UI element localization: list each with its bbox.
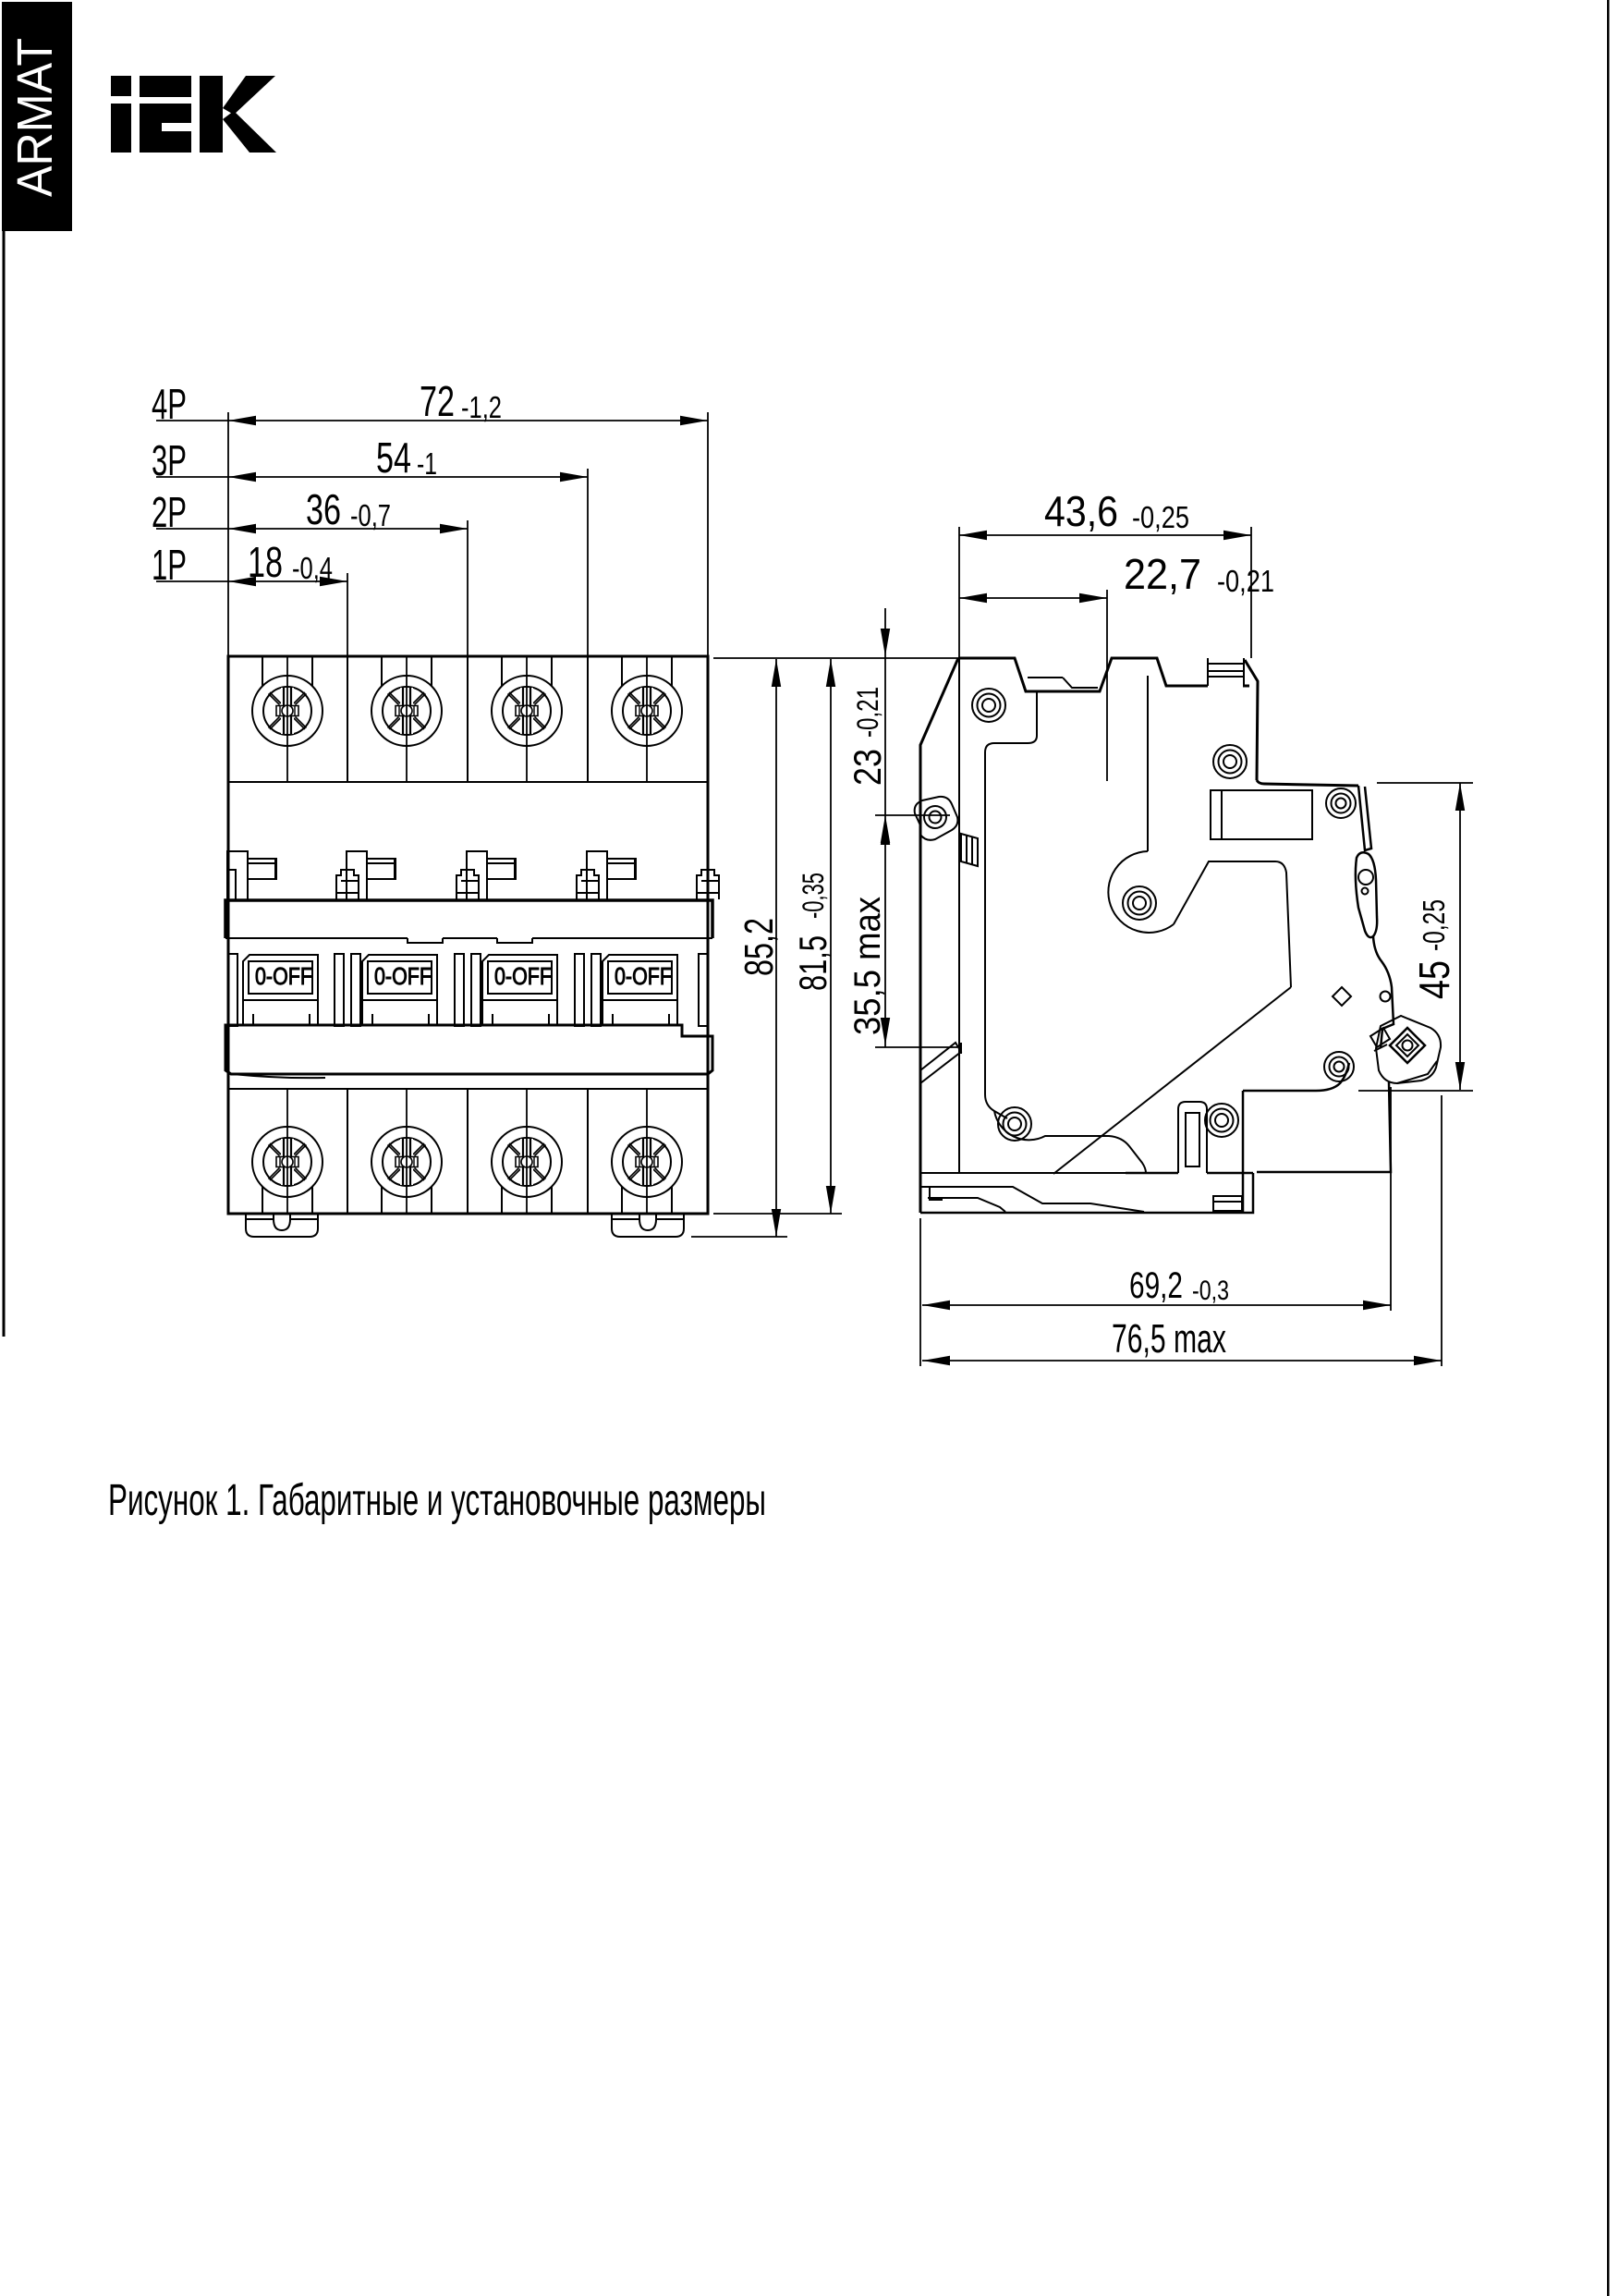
svg-text:4P: 4P <box>152 380 187 428</box>
svg-text:0-OFF: 0-OFF <box>494 962 552 990</box>
svg-text:22,7: 22,7 <box>1124 550 1201 598</box>
svg-text:-1,2: -1,2 <box>461 390 502 424</box>
svg-text:0-OFF: 0-OFF <box>255 962 312 990</box>
svg-text:54: 54 <box>376 434 411 482</box>
svg-text:-0,7: -0,7 <box>350 498 391 532</box>
svg-text:81,5: 81,5 <box>791 935 834 991</box>
svg-text:18: 18 <box>248 538 283 586</box>
svg-text:-0,21: -0,21 <box>851 687 884 738</box>
svg-text:0-OFF: 0-OFF <box>374 962 432 990</box>
svg-text:35,5 max: 35,5 max <box>847 897 888 1035</box>
svg-text:36: 36 <box>306 485 341 533</box>
svg-text:2P: 2P <box>152 488 187 536</box>
svg-text:-1: -1 <box>417 446 437 481</box>
svg-text:-0,35: -0,35 <box>797 873 830 919</box>
svg-text:Рисунок 1. Габаритные и устано: Рисунок 1. Габаритные и установочные раз… <box>108 1476 766 1525</box>
svg-text:ARMAT: ARMAT <box>7 38 63 197</box>
svg-text:3P: 3P <box>152 436 187 484</box>
svg-text:-0,25: -0,25 <box>1417 899 1451 951</box>
svg-text:69,2: 69,2 <box>1129 1265 1183 1306</box>
svg-text:1P: 1P <box>152 541 187 589</box>
svg-text:85,2: 85,2 <box>736 918 782 976</box>
svg-text:45: 45 <box>1410 960 1458 999</box>
svg-text:72: 72 <box>420 377 455 425</box>
svg-text:76,5 max: 76,5 max <box>1112 1316 1226 1362</box>
svg-text:-0,25: -0,25 <box>1132 500 1189 534</box>
svg-text:0-OFF: 0-OFF <box>615 962 672 990</box>
svg-text:23: 23 <box>846 749 889 786</box>
svg-text:-0,4: -0,4 <box>292 551 333 585</box>
svg-text:43,6: 43,6 <box>1044 487 1118 535</box>
svg-text:-0,3: -0,3 <box>1192 1276 1229 1306</box>
svg-text:-0,21: -0,21 <box>1217 564 1274 598</box>
